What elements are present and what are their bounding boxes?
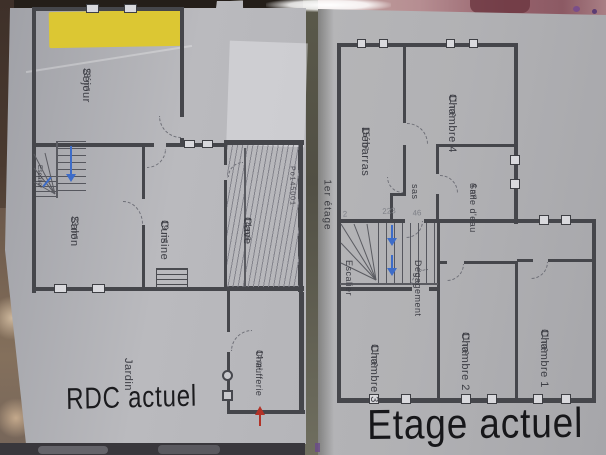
window-symbol	[510, 155, 520, 165]
window-symbol	[202, 140, 213, 148]
wall	[403, 145, 406, 196]
window-symbol	[379, 39, 388, 48]
window-symbol	[124, 4, 137, 13]
stair-arrow-head	[66, 174, 76, 182]
pencil-note: 46	[412, 208, 422, 218]
wall	[299, 292, 304, 414]
wall	[464, 261, 517, 264]
wall	[403, 47, 406, 123]
background-blob	[38, 446, 108, 454]
window-symbol	[539, 215, 549, 225]
background-purple-mark	[315, 443, 320, 452]
wall	[514, 43, 518, 224]
stair-arrow-head	[387, 238, 397, 246]
wall	[142, 147, 145, 199]
stair-direction-arrow	[70, 146, 72, 176]
highlight-marker	[49, 10, 182, 48]
wall	[592, 219, 596, 403]
pencil-note: 223	[382, 206, 396, 216]
caption-rdc: RDC actuel	[66, 380, 197, 417]
background-purple-dot	[592, 9, 597, 14]
cellar-stair-symbol	[156, 268, 188, 288]
boiler-flue-symbol	[222, 370, 233, 381]
background-maroon-blob	[470, 0, 530, 13]
wall	[32, 143, 154, 147]
wall	[166, 143, 226, 147]
wall	[429, 287, 438, 291]
window-symbol	[561, 215, 571, 225]
wall	[142, 225, 145, 290]
window-symbol	[510, 179, 520, 189]
wall	[436, 194, 439, 222]
window-symbol	[92, 284, 105, 293]
wall	[548, 259, 594, 262]
wall	[32, 7, 184, 11]
pencil-note: 2	[342, 209, 347, 218]
window-symbol	[469, 39, 478, 48]
entry-arrow-red-stem	[259, 414, 261, 426]
window-symbol	[184, 140, 195, 148]
window-symbol	[54, 284, 67, 293]
window-symbol	[357, 39, 366, 48]
wall	[32, 7, 36, 293]
wall	[437, 261, 447, 264]
wall	[227, 410, 305, 414]
caption-etage: Etage actuel	[367, 399, 583, 449]
floor-level-label: 1er étage	[322, 179, 333, 230]
paper-light-patch	[226, 41, 308, 148]
stamp-text: Po145001	[289, 166, 296, 206]
floorplan-photo-collage: Po145001 Séjour 28 m² Salon 23 m² Cuisin…	[0, 0, 606, 455]
wall	[515, 261, 518, 400]
background-purple-dot	[573, 6, 580, 12]
wall	[227, 288, 230, 332]
background-blob	[158, 445, 220, 454]
wall	[514, 219, 596, 223]
stair-treads	[58, 141, 86, 197]
window-symbol	[446, 39, 455, 48]
paper-edge-shadow	[318, 9, 334, 455]
wall	[227, 352, 230, 414]
wall	[436, 147, 439, 174]
window-symbol	[86, 4, 99, 13]
stair-arrow-head	[387, 268, 397, 276]
wall	[180, 7, 184, 117]
meter-symbol	[222, 390, 233, 401]
